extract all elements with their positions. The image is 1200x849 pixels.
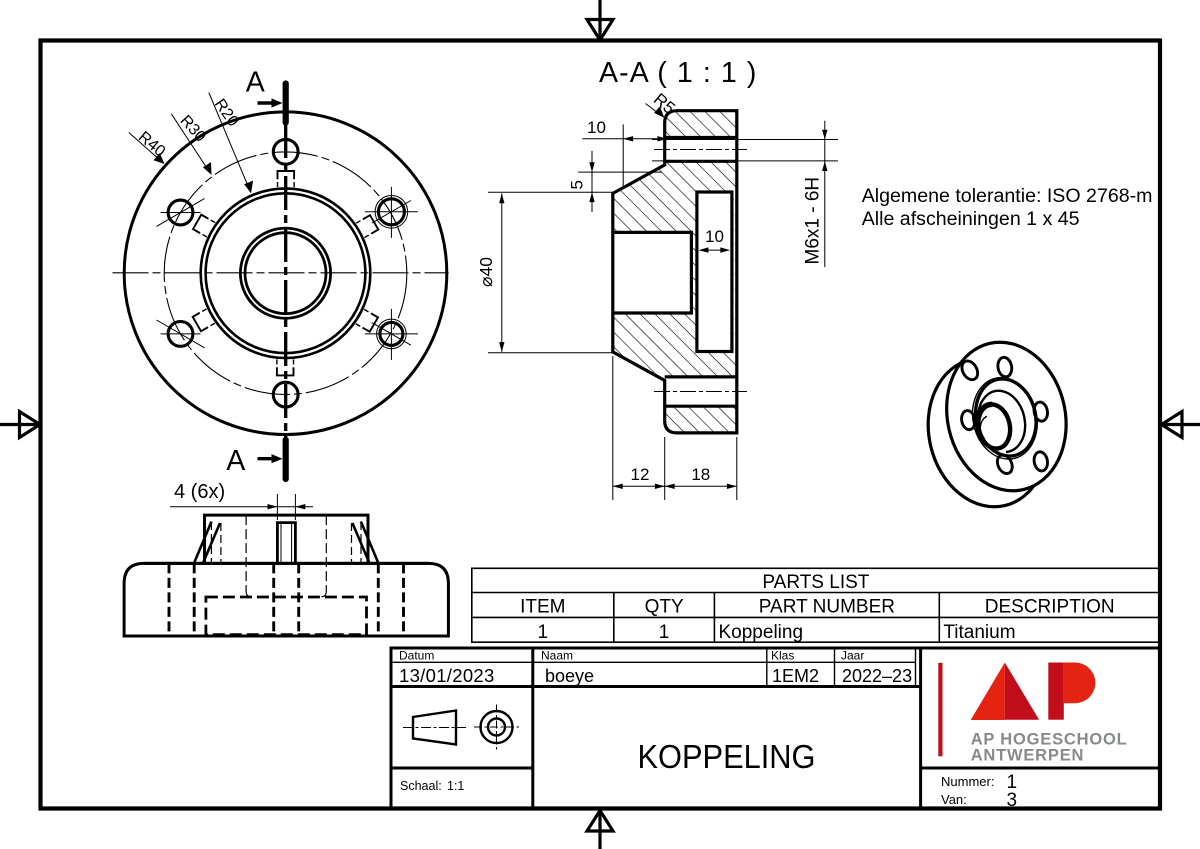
svg-text:KOPPELING: KOPPELING <box>638 739 816 776</box>
svg-text:Klas: Klas <box>771 649 794 663</box>
svg-text:5: 5 <box>568 180 587 189</box>
svg-text:Nummer:: Nummer: <box>941 774 994 789</box>
svg-text:R20: R20 <box>211 96 242 130</box>
svg-text:A: A <box>246 67 265 99</box>
svg-text:3: 3 <box>1007 790 1018 811</box>
svg-text:4 (6x): 4 (6x) <box>174 481 225 503</box>
svg-text:13/01/2023: 13/01/2023 <box>399 665 495 686</box>
svg-text:ITEM: ITEM <box>520 597 565 618</box>
svg-text:10: 10 <box>705 227 724 246</box>
svg-text:18: 18 <box>691 465 710 484</box>
svg-text:Van:: Van: <box>941 792 967 807</box>
svg-text:⌀40: ⌀40 <box>476 257 496 287</box>
svg-text:A-A ( 1 : 1 ): A-A ( 1 : 1 ) <box>599 57 757 89</box>
svg-text:Jaar: Jaar <box>841 649 864 663</box>
svg-text:1:1: 1:1 <box>447 779 464 793</box>
svg-text:Datum: Datum <box>399 649 434 663</box>
svg-text:10: 10 <box>587 118 606 137</box>
svg-text:Alle afscheiningen 1 x 45: Alle afscheiningen 1 x 45 <box>862 208 1080 230</box>
svg-text:PARTS LIST: PARTS LIST <box>762 572 869 593</box>
svg-text:R30: R30 <box>177 112 209 145</box>
svg-text:Titanium: Titanium <box>943 622 1015 643</box>
svg-text:1EM2: 1EM2 <box>772 666 819 686</box>
svg-text:Koppeling: Koppeling <box>719 622 804 643</box>
svg-text:1: 1 <box>538 622 549 643</box>
svg-text:Algemene tolerantie: ISO 2768-: Algemene tolerantie: ISO 2768-m <box>862 185 1153 207</box>
svg-text:12: 12 <box>631 465 650 484</box>
svg-text:2022–23: 2022–23 <box>842 666 912 686</box>
svg-text:Naam: Naam <box>541 649 573 663</box>
svg-text:boeye: boeye <box>545 666 594 686</box>
svg-text:DESCRIPTION: DESCRIPTION <box>985 597 1115 618</box>
svg-text:A: A <box>226 445 245 477</box>
svg-text:Schaal:: Schaal: <box>400 779 442 793</box>
svg-text:QTY: QTY <box>645 597 684 618</box>
svg-text:M6x1 - 6H: M6x1 - 6H <box>803 177 824 265</box>
svg-text:ANTWERPEN: ANTWERPEN <box>971 747 1085 765</box>
svg-text:PART NUMBER: PART NUMBER <box>759 597 895 618</box>
svg-text:1: 1 <box>659 622 670 643</box>
svg-text:R40: R40 <box>135 129 168 161</box>
